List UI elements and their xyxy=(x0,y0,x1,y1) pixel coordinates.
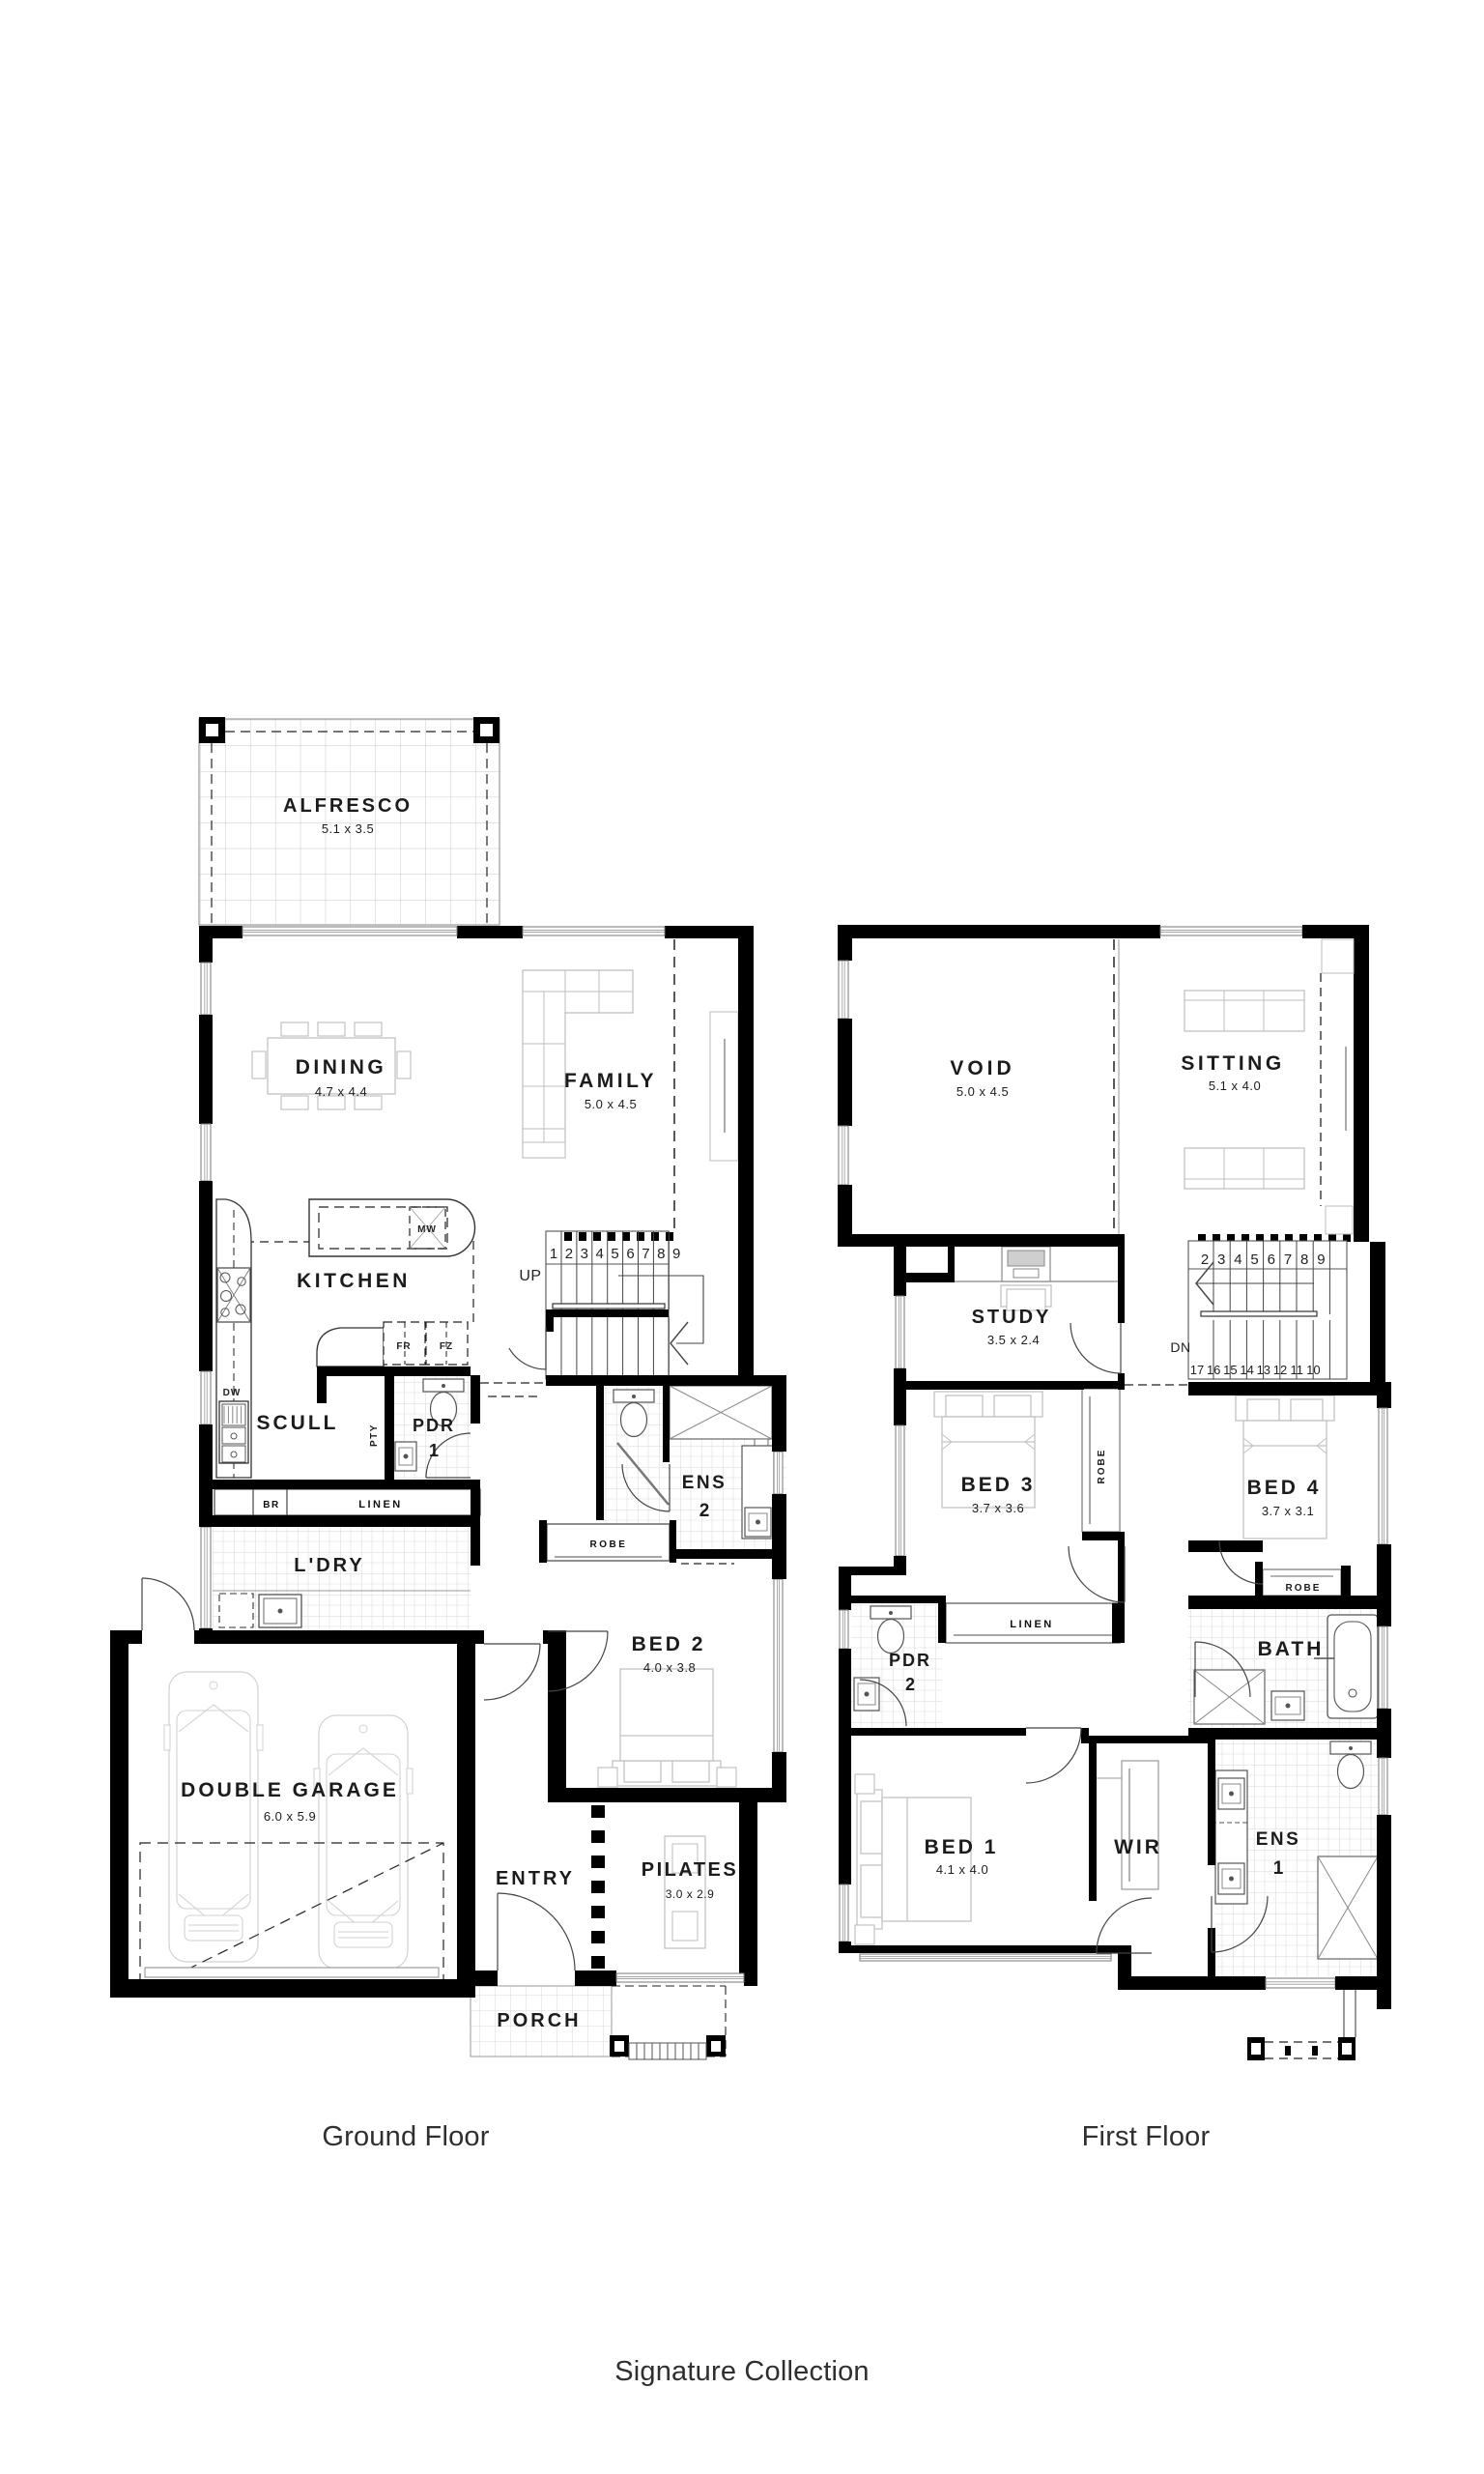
svg-text:BED 4: BED 4 xyxy=(1247,1477,1322,1499)
svg-text:BED 1: BED 1 xyxy=(925,1836,999,1858)
svg-text:ENS: ENS xyxy=(1256,1829,1301,1850)
svg-text:2: 2 xyxy=(699,1501,710,1521)
svg-text:4.1 x 4.0: 4.1 x 4.0 xyxy=(936,1862,988,1877)
svg-text:DN: DN xyxy=(1170,1339,1190,1355)
svg-text:PDR: PDR xyxy=(413,1416,455,1435)
svg-text:6: 6 xyxy=(1268,1251,1275,1268)
svg-text:PILATES: PILATES xyxy=(642,1859,738,1881)
svg-text:4: 4 xyxy=(1234,1251,1241,1268)
svg-text:10: 10 xyxy=(1306,1363,1320,1377)
svg-text:VOID: VOID xyxy=(950,1057,1014,1079)
svg-text:6: 6 xyxy=(626,1246,634,1262)
svg-text:FR: FR xyxy=(396,1341,411,1352)
svg-text:5.1 x 3.5: 5.1 x 3.5 xyxy=(322,821,374,836)
svg-text:PDR: PDR xyxy=(889,1651,931,1670)
svg-text:5.0 x 4.5: 5.0 x 4.5 xyxy=(585,1097,637,1111)
svg-text:LINEN: LINEN xyxy=(358,1499,403,1510)
svg-text:SCULL: SCULL xyxy=(257,1412,339,1434)
svg-text:ROBE: ROBE xyxy=(590,1539,628,1550)
svg-text:2: 2 xyxy=(905,1675,915,1694)
svg-text:13: 13 xyxy=(1257,1363,1270,1377)
svg-text:3: 3 xyxy=(1217,1251,1225,1268)
svg-text:First Floor: First Floor xyxy=(1082,2121,1211,2152)
svg-text:8: 8 xyxy=(1300,1251,1308,1268)
svg-text:ENTRY: ENTRY xyxy=(496,1868,575,1889)
svg-text:1: 1 xyxy=(429,1441,439,1460)
svg-text:5: 5 xyxy=(611,1246,618,1262)
svg-text:3.5 x 2.4: 3.5 x 2.4 xyxy=(987,1333,1040,1347)
svg-text:DINING: DINING xyxy=(296,1056,387,1079)
svg-text:1: 1 xyxy=(1273,1858,1284,1879)
svg-text:2: 2 xyxy=(565,1246,573,1262)
svg-text:9: 9 xyxy=(672,1246,680,1262)
svg-text:12: 12 xyxy=(1273,1363,1287,1377)
svg-text:17: 17 xyxy=(1190,1363,1204,1377)
svg-text:SITTING: SITTING xyxy=(1181,1052,1284,1075)
svg-text:3: 3 xyxy=(581,1246,588,1262)
svg-text:3.7 x 3.1: 3.7 x 3.1 xyxy=(1262,1504,1314,1518)
svg-text:6.0 x 5.9: 6.0 x 5.9 xyxy=(264,1809,316,1824)
svg-text:14: 14 xyxy=(1240,1363,1253,1377)
svg-text:5.1 x 4.0: 5.1 x 4.0 xyxy=(1209,1079,1261,1093)
svg-text:1: 1 xyxy=(550,1246,557,1262)
svg-text:DW: DW xyxy=(223,1388,242,1398)
svg-text:4.7 x 4.4: 4.7 x 4.4 xyxy=(315,1084,367,1099)
svg-text:5.0 x 4.5: 5.0 x 4.5 xyxy=(956,1084,1009,1099)
svg-text:9: 9 xyxy=(1317,1251,1325,1268)
svg-text:4.0 x 3.8: 4.0 x 3.8 xyxy=(643,1660,696,1675)
svg-text:BED 3: BED 3 xyxy=(961,1474,1036,1496)
svg-text:7: 7 xyxy=(1284,1251,1292,1268)
svg-text:Signature Collection: Signature Collection xyxy=(614,2356,870,2387)
svg-text:2: 2 xyxy=(1201,1251,1209,1268)
svg-text:UP: UP xyxy=(519,1268,541,1284)
svg-text:16: 16 xyxy=(1207,1363,1220,1377)
svg-text:DOUBLE GARAGE: DOUBLE GARAGE xyxy=(181,1779,399,1801)
svg-text:KITCHEN: KITCHEN xyxy=(297,1270,411,1292)
svg-text:5: 5 xyxy=(1250,1251,1258,1268)
svg-text:ROBE: ROBE xyxy=(1097,1449,1107,1484)
svg-text:15: 15 xyxy=(1223,1363,1237,1377)
svg-text:11: 11 xyxy=(1290,1363,1303,1377)
svg-text:LINEN: LINEN xyxy=(1010,1619,1054,1630)
svg-text:BED 2: BED 2 xyxy=(632,1633,706,1655)
svg-text:PORCH: PORCH xyxy=(497,2010,581,2031)
svg-text:PTY: PTY xyxy=(369,1424,380,1447)
svg-text:4: 4 xyxy=(596,1246,604,1262)
svg-text:FZ: FZ xyxy=(440,1341,453,1352)
svg-text:BR: BR xyxy=(263,1500,279,1510)
svg-text:ROBE: ROBE xyxy=(1286,1583,1322,1594)
svg-text:3.7 x 3.6: 3.7 x 3.6 xyxy=(972,1501,1024,1515)
svg-text:8: 8 xyxy=(657,1246,665,1262)
svg-text:FAMILY: FAMILY xyxy=(564,1070,657,1092)
svg-text:STUDY: STUDY xyxy=(972,1307,1052,1328)
svg-text:MW: MW xyxy=(417,1224,437,1235)
svg-text:BATH: BATH xyxy=(1258,1638,1325,1660)
svg-text:7: 7 xyxy=(642,1246,649,1262)
svg-text:ALFRESCO: ALFRESCO xyxy=(283,795,413,817)
svg-text:3.0 x 2.9: 3.0 x 2.9 xyxy=(666,1887,715,1901)
svg-text:WIR: WIR xyxy=(1114,1836,1162,1858)
svg-text:L'DRY: L'DRY xyxy=(294,1555,364,1576)
svg-text:Ground Floor: Ground Floor xyxy=(322,2121,489,2152)
svg-text:ENS: ENS xyxy=(682,1473,728,1493)
